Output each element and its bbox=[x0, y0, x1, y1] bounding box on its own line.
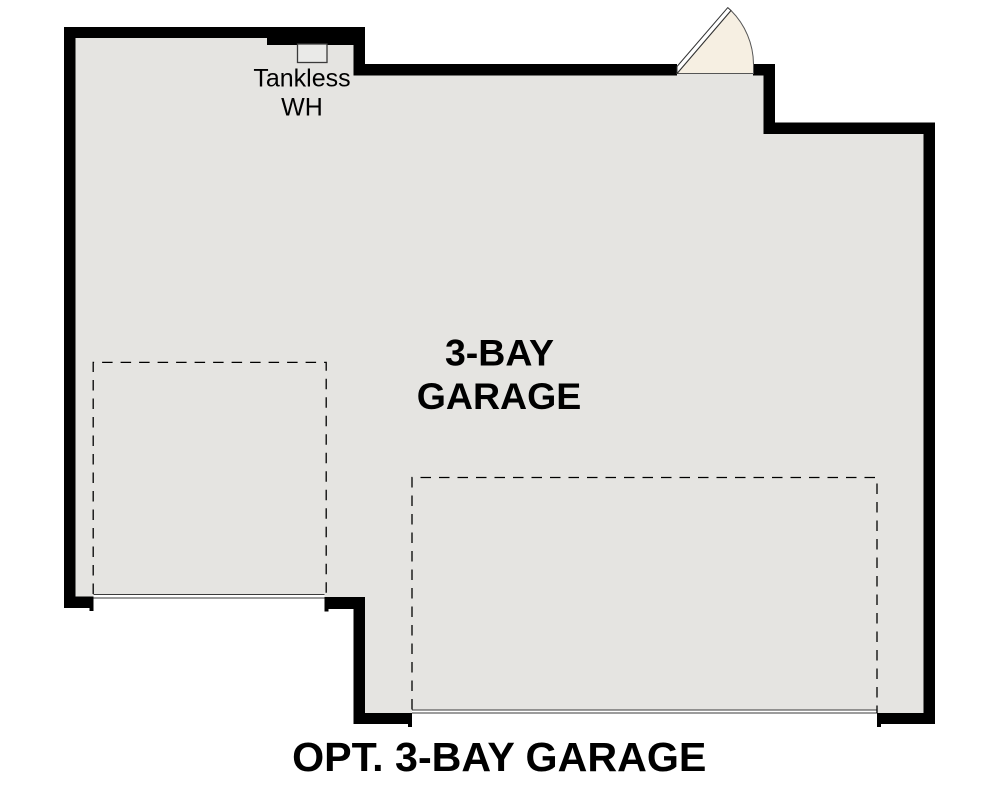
svg-text:Tankless: Tankless bbox=[253, 65, 350, 93]
svg-text:GARAGE: GARAGE bbox=[417, 375, 582, 417]
svg-text:OPT. 3-BAY GARAGE: OPT. 3-BAY GARAGE bbox=[292, 734, 706, 780]
svg-text:3-BAY: 3-BAY bbox=[445, 332, 554, 374]
svg-text:WH: WH bbox=[281, 94, 323, 122]
